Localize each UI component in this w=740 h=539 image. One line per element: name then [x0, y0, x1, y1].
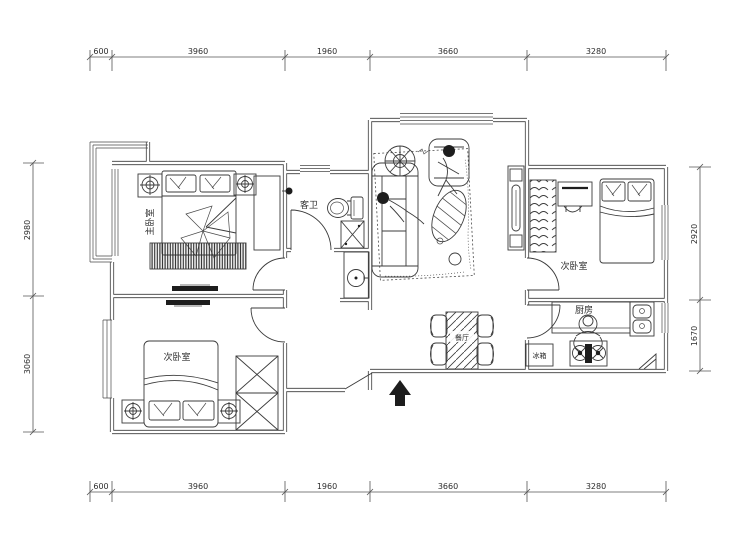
dim-bottom-1960: 1960	[317, 482, 337, 491]
living-room-window	[400, 114, 493, 125]
living-room	[372, 139, 524, 280]
toilet-icon	[328, 197, 364, 219]
dimension-line-bottom: 600 3960 1960 3660 3280	[87, 481, 669, 502]
dining-label: 餐厅	[455, 333, 469, 342]
master-bedroom: 主卧室	[138, 171, 280, 291]
guest-bathroom-label: 客卫	[300, 199, 318, 211]
kitchen-label: 厨房	[575, 304, 593, 316]
wardrobe	[236, 356, 278, 430]
ceiling-fan-icon	[385, 146, 428, 176]
dining-chair	[431, 315, 448, 337]
second-bedroom-left-label: 次卧室	[163, 351, 190, 363]
dim-top-3660: 3660	[438, 47, 458, 56]
kitchen-window	[662, 303, 668, 333]
dining-chair	[477, 315, 494, 337]
entrance-arrow-icon	[389, 380, 411, 406]
dining-area: 餐厅	[431, 312, 494, 369]
dim-top-3960: 3960	[188, 47, 208, 56]
second-bedroom-left-door	[251, 308, 285, 342]
dimension-line-right: 2920 1670	[689, 164, 711, 374]
dining-chair	[431, 343, 448, 365]
fridge: 冰箱	[526, 344, 553, 366]
dim-left-2980: 2980	[23, 220, 32, 240]
tv-cabinet	[166, 300, 210, 306]
guest-bathroom: 客卫	[282, 188, 369, 299]
nightstand	[138, 174, 162, 197]
corner-shelf	[639, 354, 656, 369]
kitchen: 冰箱 厨房	[526, 302, 656, 369]
floor-plan-drawing: 600 3960 1960 3660 3280 600 3960 1960 36…	[0, 0, 740, 539]
dim-right-1670: 1670	[690, 326, 699, 346]
tv-cabinet	[172, 285, 218, 291]
nightstand	[218, 400, 240, 423]
dim-left-3060: 3060	[23, 354, 32, 374]
second-bedroom-right-label: 次卧室	[560, 260, 587, 272]
nightstand	[234, 174, 256, 195]
second-bedroom-left: 次卧室	[122, 300, 278, 430]
dim-top-1960: 1960	[317, 47, 337, 56]
bathroom-door	[291, 210, 331, 250]
tv-panel	[508, 166, 524, 250]
second-bedroom-left-window	[103, 320, 112, 398]
wardrobe	[530, 180, 556, 252]
second-bedroom-right-window	[662, 205, 668, 260]
nightstand	[122, 400, 144, 423]
wardrobe	[254, 176, 280, 250]
dim-top-3280: 3280	[586, 47, 606, 56]
desk	[558, 182, 592, 212]
dim-top-600: 600	[93, 47, 108, 56]
second-bedroom-right-door	[527, 258, 559, 290]
stove-icon	[570, 341, 607, 366]
rug	[150, 243, 246, 269]
rug	[374, 149, 475, 281]
second-bedroom-right: 次卧室	[530, 179, 654, 272]
bed	[600, 179, 654, 263]
dim-bottom-3960: 3960	[188, 482, 208, 491]
dimension-line-top: 600 3960 1960 3660 3280	[87, 47, 669, 71]
bathroom-window	[300, 166, 330, 172]
dining-chair	[477, 343, 494, 365]
master-bedroom-door	[253, 258, 285, 290]
balcony-window	[90, 142, 148, 262]
dim-right-2920: 2920	[690, 224, 699, 244]
fridge-label: 冰箱	[533, 351, 547, 360]
sink-icon	[630, 302, 654, 336]
dim-bottom-600: 600	[93, 482, 108, 491]
dim-bottom-3280: 3280	[586, 482, 606, 491]
washbasin-icon	[344, 252, 369, 298]
master-bedroom-window	[112, 169, 118, 256]
person-figure	[438, 145, 459, 196]
shower-icon	[341, 221, 364, 248]
floor-plan-canvas: 600 3960 1960 3660 3280 600 3960 1960 36…	[0, 0, 740, 539]
sofa	[372, 163, 418, 277]
dim-bottom-3660: 3660	[438, 482, 458, 491]
person-figure	[377, 192, 424, 224]
coffee-table	[421, 184, 478, 265]
dimension-line-left: 2980 3060	[23, 160, 44, 435]
master-bedroom-label: 主卧室	[144, 208, 156, 235]
